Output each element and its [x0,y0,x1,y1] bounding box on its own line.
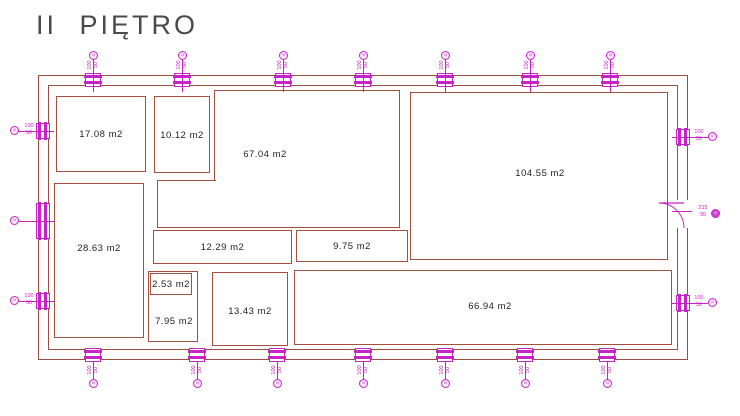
window-marker-circle: o [10,296,19,305]
window-dimension-label: 100 50 [191,361,203,379]
window-marker-circle: o [708,298,717,307]
window-marker-stem [18,221,54,222]
room-area-label: 66.94 m2 [445,301,535,312]
window-marker-circle: o [359,379,368,388]
window-bar [268,356,286,359]
window-dimension-label: 100 50 [20,293,38,307]
room-area-label: 67.04 m2 [220,149,310,160]
window-marker-circle: o [193,379,202,388]
window-dimension-label: 100 50 [357,361,369,379]
window-marker-circle: o [89,379,98,388]
window-bar [354,356,372,359]
window-bar [188,356,206,359]
window-marker-circle: o [279,51,288,60]
window-marker-circle: o [359,51,368,60]
window-bar [436,356,454,359]
window-bar [598,350,616,353]
window-dimension-label: 100 50 [439,361,451,379]
room-outline-room-28-63 [54,183,144,338]
window-marker-circle: o [441,379,450,388]
window-dimension-label: 100 50 [601,361,613,379]
door-marker-circle: o [711,209,720,218]
window-bar [436,350,454,353]
window-bar [516,350,534,353]
window-marker-circle: o [526,51,535,60]
door-arc-icon [640,192,700,237]
window-marker-circle: o [273,379,282,388]
window-dimension-label: 100 50 [690,295,708,309]
room-notch-room-67-04 [157,180,216,228]
window-bar [268,350,286,353]
room-area-label: 7.95 m2 [129,316,219,327]
window-marker-circle: o [178,51,187,60]
window-bar [188,350,206,353]
room-area-label: 10.12 m2 [137,130,227,141]
window-bar [598,356,616,359]
window-marker-circle: o [10,216,19,225]
window-bar [84,350,102,353]
window-bar [354,350,372,353]
window-marker-circle: o [708,132,717,141]
window-dimension-label: 100 50 [690,129,708,143]
window-bar [84,356,102,359]
window-dimension-label: 100 50 [87,361,99,379]
window-dimension-label: 100 50 [20,123,38,137]
window-dimension-label: 100 50 [519,361,531,379]
window-bar [516,356,534,359]
room-area-label: 12.29 m2 [178,242,268,253]
room-area-label: 9.75 m2 [307,241,397,252]
door-dimension-label: 215 95 [694,205,712,219]
window-marker-circle: o [603,379,612,388]
window-dimension-label: 100 50 [271,361,283,379]
window-marker-circle: o [521,379,530,388]
window-marker-circle: o [10,126,19,135]
room-area-label: 104.55 m2 [495,168,585,179]
window-marker-circle: o [441,51,450,60]
room-area-label: 17.08 m2 [56,129,146,140]
door-marker-stem [672,211,692,212]
window-marker-circle: o [89,51,98,60]
page-title: II PIĘTRO [36,10,198,41]
room-area-label: 2.53 m2 [126,279,216,290]
window-marker-circle: o [606,51,615,60]
room-area-label: 13.43 m2 [205,306,295,317]
floor-plan: II PIĘTRO 17.08 m210.12 m267.04 m212.29 … [0,0,740,416]
room-area-label: 28.63 m2 [54,243,144,254]
